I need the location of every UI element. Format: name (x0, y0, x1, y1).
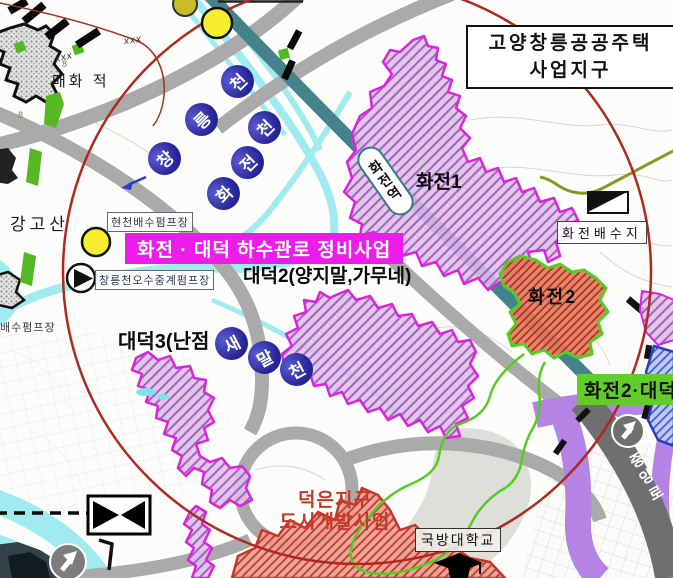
project-title-banner: 화전 · 대덕 하수관로 정비사업 (125, 233, 403, 264)
region-title-line2: 사업지구 (476, 57, 665, 84)
university-label: 국방대학교 (415, 528, 501, 552)
spot-height-mark: 8 (18, 110, 23, 120)
yellow-node-icon (202, 8, 232, 38)
daedeok2-label: 대덕2(양지말,가무네) (243, 261, 411, 288)
hwajeon1-label: 화전1 (416, 167, 462, 194)
mountain-label: 강고산 (10, 210, 69, 235)
region-title-line1: 고양창릉공공주택 (476, 30, 665, 57)
deokeun-label: 덕은지구 도시개발사업 (275, 490, 395, 534)
map-canvas: 고양창릉공공주택 사업지구 화전 · 대덕 하수관로 정비사업 대덕2(양지말,… (0, 0, 673, 578)
reservoir-symbol-icon (588, 192, 628, 213)
olive-node-icon (173, 0, 197, 16)
maehwa-label: 매화 적 (52, 70, 110, 91)
changneung-pump-label: 창릉천오수중계펌프장 (95, 270, 214, 290)
pump-partial-label: 배수펌프장 (0, 319, 56, 335)
reservoir-label: 화전배수지 (557, 221, 647, 244)
spot-height-mark: 8 (62, 59, 67, 69)
green-section-banner: 화전2·대덕 (577, 374, 673, 405)
region-title-box: 고양창릉공공주택 사업지구 (466, 25, 673, 89)
pond (157, 394, 169, 400)
yellow-node-icon (82, 228, 110, 256)
hyeoncheon-pump-label: 현천배수펌프장 (107, 212, 193, 232)
daedeok3-label: 대덕3(난점 (118, 325, 209, 354)
hwajeon2-label: 화전2 (528, 283, 577, 309)
pond (136, 388, 156, 396)
